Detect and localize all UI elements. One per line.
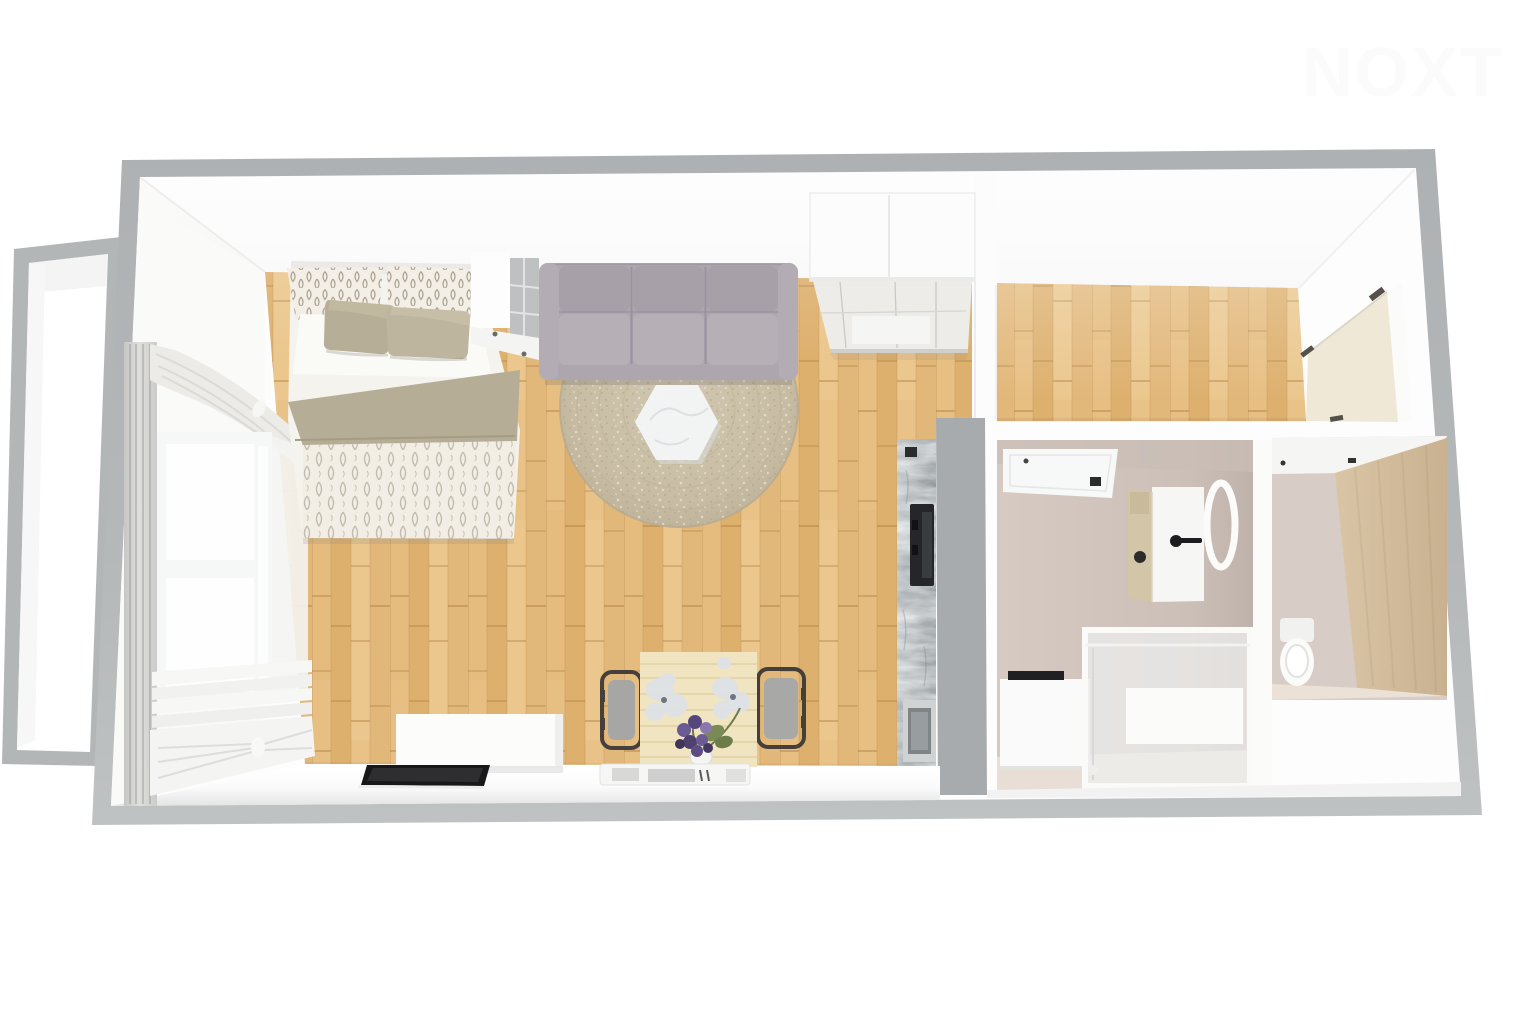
svg-text:NOXT: NOXT [1302,33,1504,111]
